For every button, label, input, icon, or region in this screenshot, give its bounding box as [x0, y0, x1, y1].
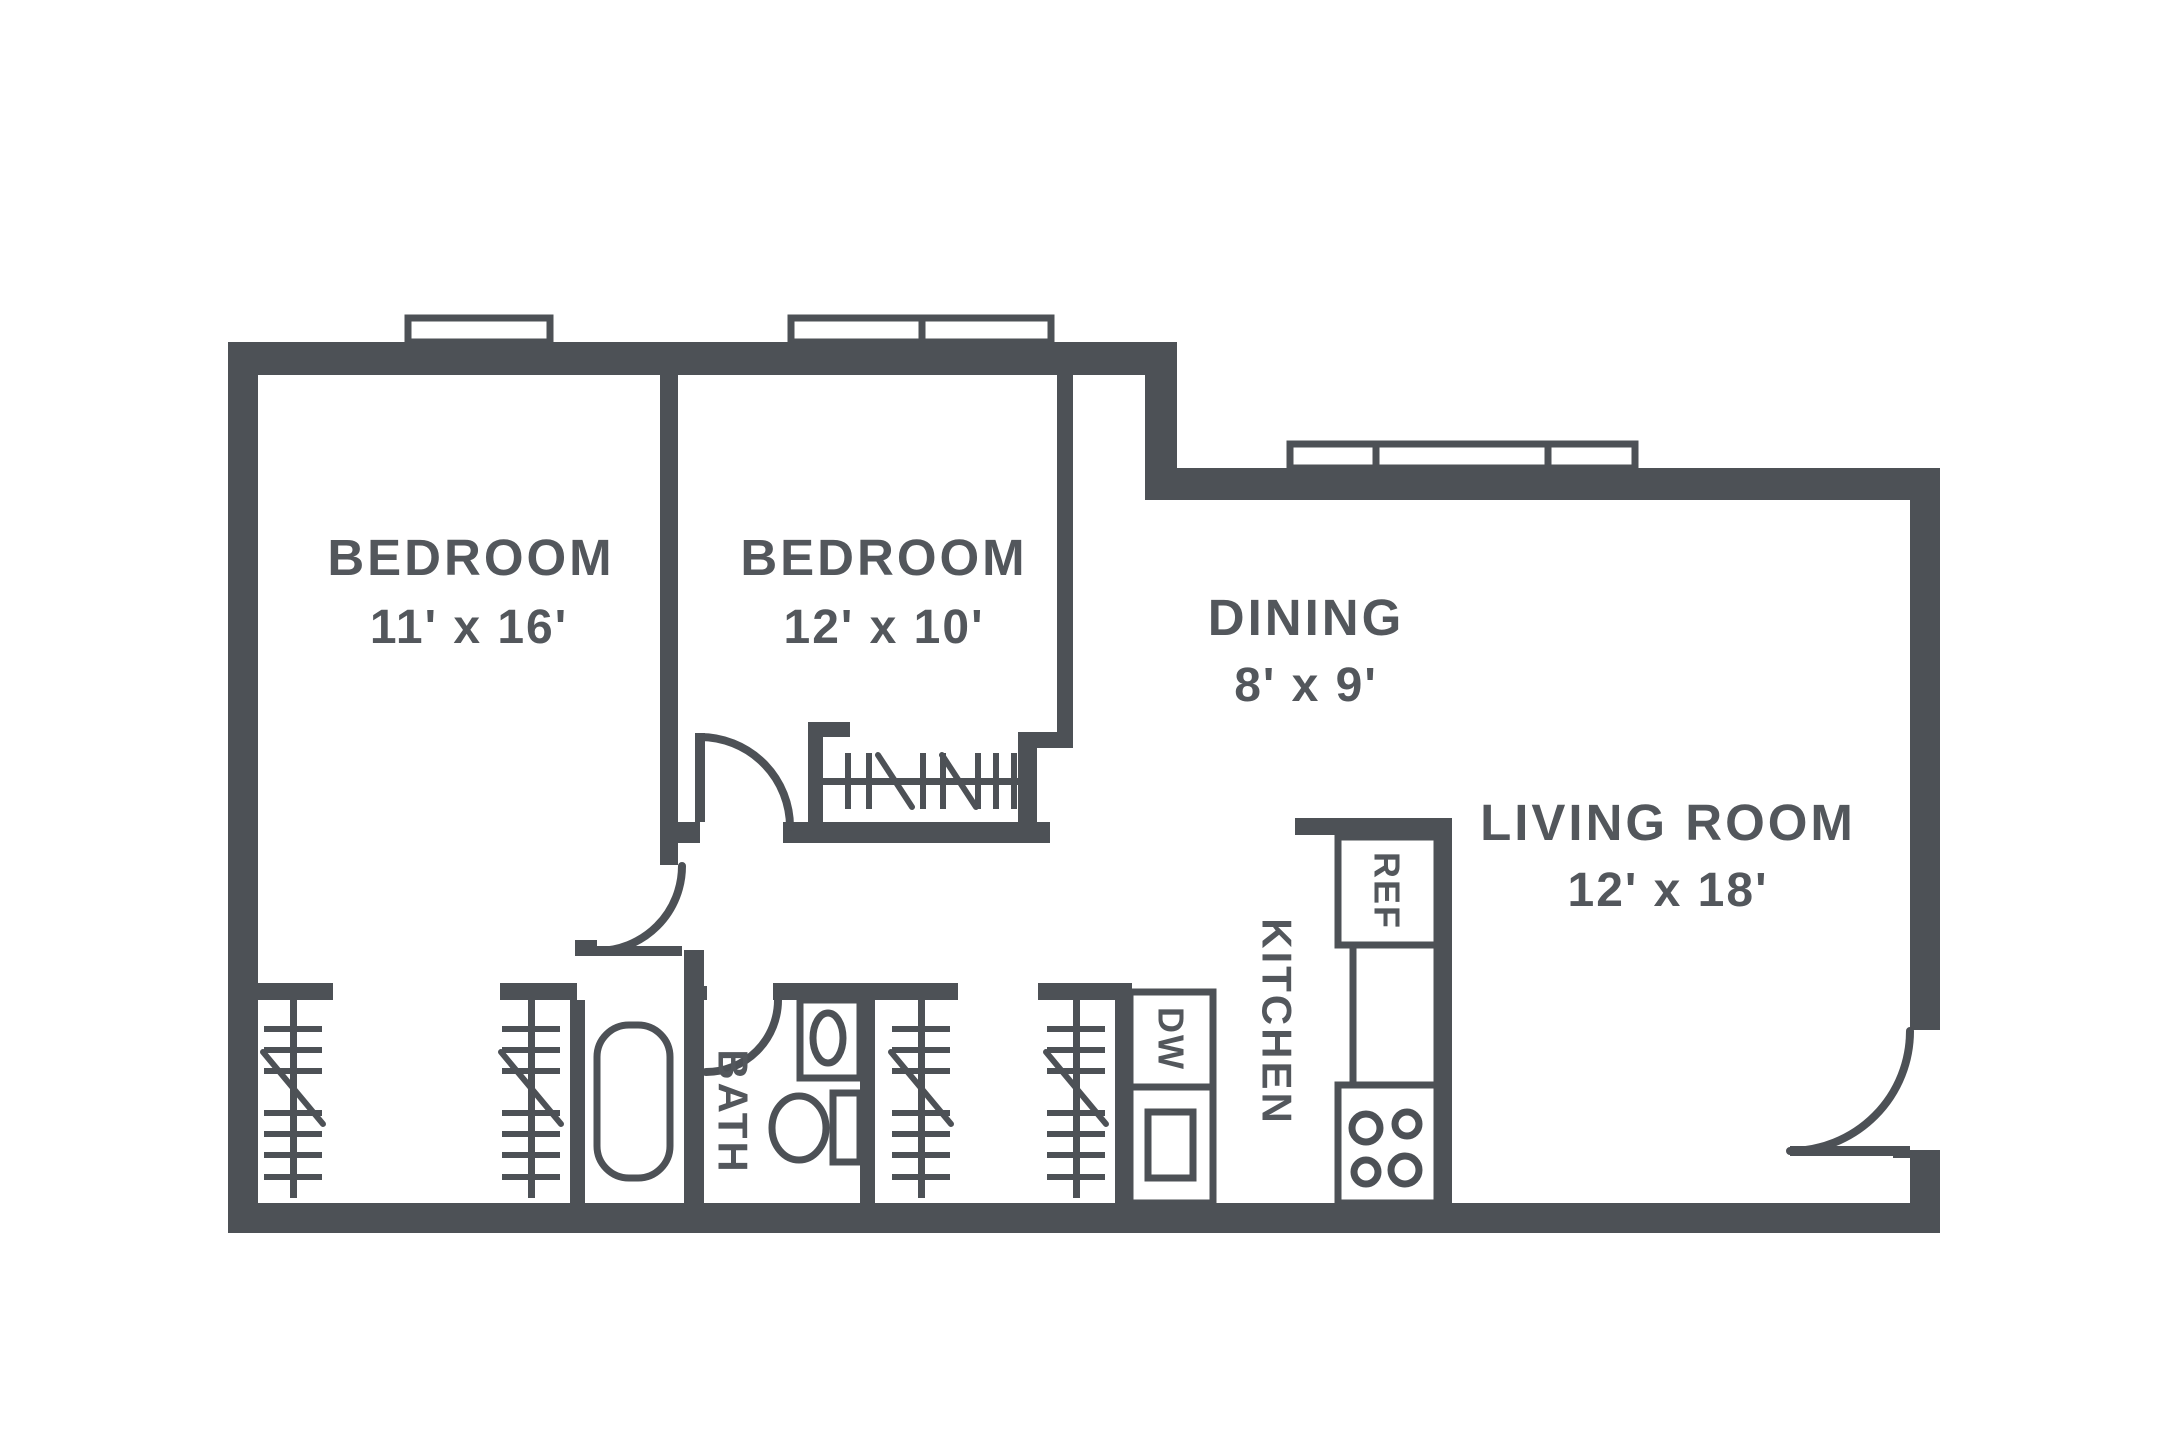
living-room-label: LIVING ROOM — [1480, 794, 1856, 851]
dining-dims: 8' x 9' — [1234, 659, 1378, 712]
toilet-bowl — [772, 1096, 826, 1160]
bedroom2-door-leaf — [695, 733, 705, 822]
closet1-lintel — [255, 983, 333, 1000]
bedroom2-dims: 12' x 10' — [784, 601, 985, 654]
closet-jamb-right-v — [1018, 732, 1037, 827]
top-wall — [228, 342, 1177, 375]
toilet-tank — [833, 1093, 860, 1162]
dishwasher-label: DW — [1151, 1007, 1192, 1071]
bedroom2-label: BEDROOM — [740, 529, 1027, 586]
left-wall — [228, 342, 258, 1233]
kitchen-top-lintel — [1295, 818, 1452, 835]
bedroom2-closet-rod — [822, 753, 1018, 809]
closet-rod-1 — [263, 1000, 323, 1198]
stove-box — [1338, 1085, 1437, 1203]
dining-top-wall — [1145, 468, 1940, 500]
windows — [408, 318, 1635, 468]
closet2-right-wall — [570, 1000, 585, 1203]
stove-burner — [1395, 1112, 1419, 1136]
closet-jamb-left-h — [820, 722, 850, 737]
bath-label: BATH — [710, 1049, 757, 1175]
oven-inner — [1148, 1112, 1193, 1178]
dining-label: DINING — [1208, 589, 1405, 646]
bath-sink-basin — [813, 1013, 843, 1063]
entry-door-arc — [1790, 1031, 1910, 1151]
kitchen-label: KITCHEN — [1254, 918, 1301, 1126]
stove-burner — [1352, 1114, 1380, 1142]
dining-window — [1290, 444, 1635, 468]
bedroom-divider-wall — [660, 375, 678, 865]
bottom-wall — [228, 1203, 1940, 1233]
bedroom1-dims: 11' x 16' — [370, 601, 568, 654]
bathtub — [597, 1025, 670, 1178]
bedroom1-door-stub — [575, 940, 597, 956]
closet-rod-2 — [501, 1000, 561, 1198]
living-room-dims: 12' x 18' — [1568, 864, 1769, 917]
bedroom1-door-arc — [597, 866, 682, 951]
bedroom2-bottom-wall — [783, 822, 1050, 843]
bedroom2-door-stub — [678, 822, 700, 843]
bedroom1-label: BEDROOM — [327, 529, 614, 586]
closet-rod-4 — [1046, 1000, 1106, 1198]
labels: BEDROOM 11' x 16' BEDROOM 12' x 10' DINI… — [327, 529, 1856, 1175]
stove-burner — [1391, 1156, 1419, 1184]
right-wall-lower — [1910, 1150, 1940, 1233]
floor-plan: BEDROOM 11' x 16' BEDROOM 12' x 10' DINI… — [0, 0, 2160, 1440]
bedroom2-door-arc — [700, 737, 790, 827]
closet-rod-3 — [891, 1000, 951, 1198]
kitchen-counter — [1353, 945, 1437, 1085]
closet-jamb-left-v — [808, 722, 823, 827]
bedroom1-window — [408, 318, 550, 342]
right-wall-upper — [1910, 468, 1940, 1030]
closet2-lintel — [500, 983, 577, 1000]
stove-burner — [1354, 1160, 1378, 1184]
bath-door-jamb — [684, 986, 707, 1000]
closet-jamb-bridge — [1035, 732, 1057, 748]
bedroom2-right-wall — [1057, 375, 1073, 748]
refrigerator-label: REF — [1367, 852, 1408, 930]
